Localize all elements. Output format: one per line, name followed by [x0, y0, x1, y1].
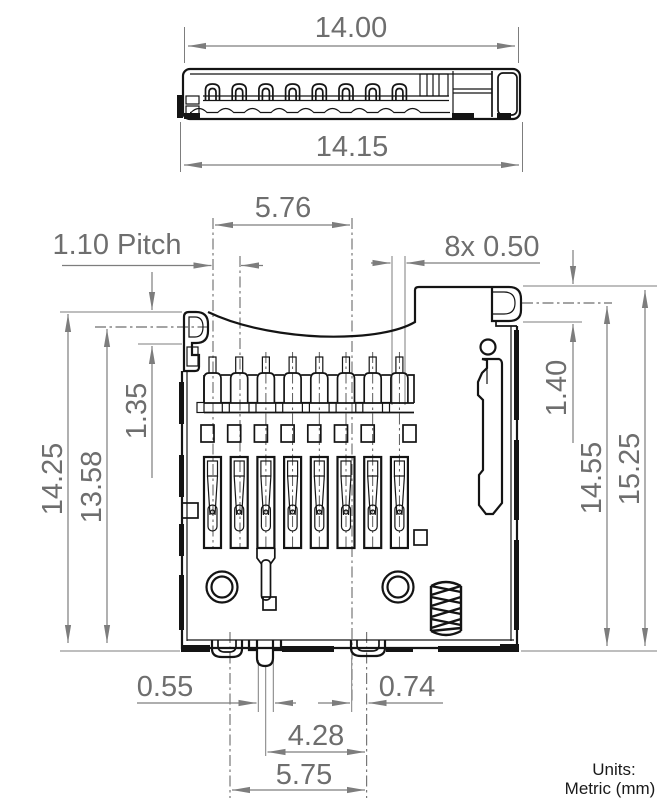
dim-width-bottom-value: 14.15 — [316, 131, 389, 163]
body-top-edge — [208, 287, 492, 337]
left-notch — [182, 503, 198, 518]
dimensions: 14.00 14.15 5.76 1.10 Pitch 8x 0.50 14.2… — [37, 12, 646, 791]
mounting-holes — [207, 572, 414, 603]
dim-height-inner-left-value: 13.58 — [76, 451, 108, 524]
dim-peg-span-inner-value: 4.28 — [288, 720, 344, 752]
front-view — [179, 287, 521, 666]
dim-pitch: 1.10 Pitch — [53, 229, 263, 266]
contact-header-band — [197, 357, 414, 413]
dim-contact-width-value: 8x 0.50 — [444, 231, 539, 263]
dim-ear-height-value: 1.35 — [121, 383, 153, 439]
dim-tab-height-value: 1.40 — [541, 360, 573, 416]
dim-width-top: 14.00 — [188, 12, 515, 46]
dim-height-inner-right: 14.55 — [576, 306, 608, 646]
dim-right-peg-width: 0.74 — [318, 671, 443, 703]
dim-width-top-value: 14.00 — [315, 12, 388, 44]
dim-ear-height: 1.35 — [121, 272, 153, 478]
right-pad — [414, 530, 427, 545]
dim-height-outer-right-value: 15.25 — [614, 433, 646, 506]
via-squares — [201, 425, 416, 442]
dim-height-inner-right-value: 14.55 — [576, 442, 608, 515]
dim-peg-span-inner: 4.28 — [268, 720, 366, 752]
dim-height-outer-left-value: 14.25 — [37, 443, 69, 516]
dim-contact-span-value: 5.76 — [255, 192, 311, 224]
dim-pitch-value: 1.10 Pitch — [53, 229, 182, 261]
dim-contact-span: 5.76 — [215, 192, 350, 225]
card-detect-contact — [478, 359, 502, 514]
right-tab — [492, 287, 521, 326]
dim-peg-span-outer: 5.75 — [232, 759, 365, 791]
dim-peg-span-outer-value: 5.75 — [276, 759, 332, 791]
units-value: Metric (mm) — [565, 779, 656, 798]
dim-small-peg-width-value: 0.55 — [137, 671, 193, 703]
dim-width-bottom: 14.15 — [184, 131, 519, 165]
dim-contact-width: 8x 0.50 — [371, 231, 540, 263]
detect-hole — [481, 340, 496, 355]
dim-height-inner-left: 13.58 — [76, 329, 108, 643]
technical-drawing-page: 14.00 14.15 5.76 1.10 Pitch 8x 0.50 14.2… — [0, 0, 662, 803]
dim-height-outer-right: 15.25 — [614, 290, 646, 646]
units-note: Units: Metric (mm) — [565, 760, 656, 798]
units-label: Units: — [592, 760, 635, 779]
dim-height-outer-left: 14.25 — [37, 314, 69, 643]
side-view — [177, 69, 520, 119]
bottom-pegs — [212, 640, 385, 666]
eject-spring — [431, 582, 461, 635]
spring-contacts — [204, 457, 408, 548]
dim-tab-height: 1.40 — [541, 250, 573, 443]
dim-small-peg-width: 0.55 — [137, 671, 296, 703]
dim-right-peg-width-value: 0.74 — [379, 671, 435, 703]
center-pin — [257, 548, 275, 600]
technical-drawing: 14.00 14.15 5.76 1.10 Pitch 8x 0.50 14.2… — [0, 0, 662, 803]
left-ear — [184, 312, 208, 371]
